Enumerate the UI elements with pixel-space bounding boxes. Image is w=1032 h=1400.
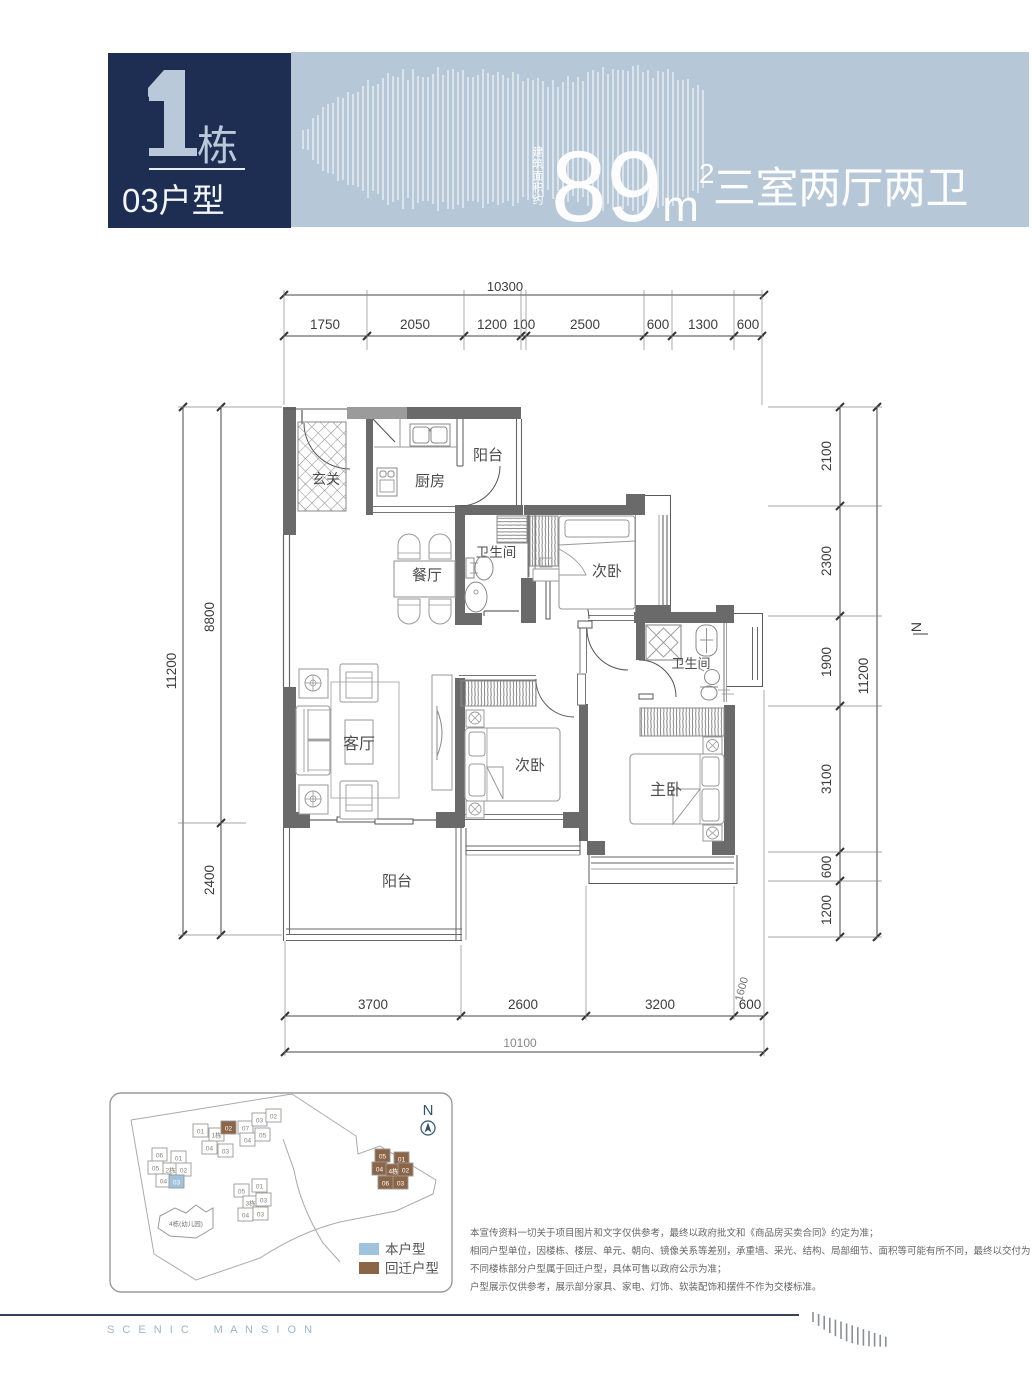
svg-text:11200: 11200 <box>164 653 179 690</box>
svg-text:04: 04 <box>376 1167 384 1174</box>
svg-text:05: 05 <box>238 1189 246 1196</box>
svg-text:04: 04 <box>242 1213 250 1220</box>
svg-text:玄关: 玄关 <box>312 471 340 487</box>
svg-text:10100: 10100 <box>503 1036 537 1050</box>
svg-text:户型展示仅供参考，展示部分家具、家电、灯饰、软装配饰和摆件不: 户型展示仅供参考，展示部分家具、家电、灯饰、软装配饰和摆件不作为交楼标准。 <box>470 1281 822 1293</box>
svg-text:03: 03 <box>397 1181 405 1188</box>
svg-text:相同户型单位，因楼栋、楼层、单元、朝向、镜像关系等差别，承重: 相同户型单位，因楼栋、楼层、单元、朝向、镜像关系等差别，承重墙、采光、结构、局部… <box>470 1245 1031 1257</box>
svg-text:01: 01 <box>175 1156 183 1163</box>
svg-text:1750: 1750 <box>310 317 340 332</box>
svg-text:卫生间: 卫生间 <box>671 656 710 671</box>
svg-text:03: 03 <box>257 1212 265 1219</box>
svg-text:02: 02 <box>180 1168 188 1175</box>
svg-text:4栋(幼儿园): 4栋(幼儿园) <box>169 1219 203 1228</box>
svg-text:客厅: 客厅 <box>343 735 375 753</box>
svg-text:回迁户型: 回迁户型 <box>385 1260 439 1276</box>
svg-text:3700: 3700 <box>358 997 388 1012</box>
svg-text:05: 05 <box>152 1166 160 1173</box>
svg-text:阳台: 阳台 <box>382 873 412 890</box>
svg-text:03: 03 <box>256 1118 264 1125</box>
svg-text:S C E N I C M A N S I O N: S C E N I C M A N S I O N <box>107 1324 315 1336</box>
svg-text:03: 03 <box>222 1149 230 1156</box>
svg-text:阳台: 阳台 <box>473 447 503 464</box>
svg-text:07: 07 <box>242 1126 250 1133</box>
svg-text:2050: 2050 <box>400 317 430 332</box>
svg-text:02: 02 <box>225 1126 233 1133</box>
svg-text:600: 600 <box>819 856 834 879</box>
svg-text:本户型: 本户型 <box>385 1241 426 1257</box>
svg-text:8800: 8800 <box>202 602 217 632</box>
svg-text:2100: 2100 <box>819 441 834 471</box>
svg-text:06: 06 <box>156 1153 164 1160</box>
svg-text:次卧: 次卧 <box>592 563 622 580</box>
svg-text:06: 06 <box>382 1181 390 1188</box>
svg-text:2300: 2300 <box>819 546 834 576</box>
svg-text:03: 03 <box>260 1198 268 1205</box>
svg-text:04: 04 <box>206 1146 214 1153</box>
svg-text:600: 600 <box>737 317 760 332</box>
svg-text:4栋: 4栋 <box>388 1167 399 1176</box>
svg-text:卫生间: 卫生间 <box>476 545 517 560</box>
svg-text:03: 03 <box>173 1180 181 1187</box>
svg-text:厨房: 厨房 <box>415 473 445 490</box>
svg-text:2栋: 2栋 <box>165 1166 176 1175</box>
svg-text:1900: 1900 <box>819 647 834 677</box>
svg-text:主卧: 主卧 <box>650 781 682 799</box>
svg-text:2400: 2400 <box>202 865 217 895</box>
svg-text:100: 100 <box>513 317 536 332</box>
svg-text:10300: 10300 <box>487 279 523 294</box>
svg-text:1300: 1300 <box>688 317 718 332</box>
svg-text:3200: 3200 <box>645 997 675 1012</box>
svg-text:2500: 2500 <box>570 317 600 332</box>
svg-text:05: 05 <box>379 1154 387 1161</box>
svg-text:01: 01 <box>197 1129 205 1136</box>
svg-text:04: 04 <box>160 1179 168 1186</box>
svg-text:11200: 11200 <box>856 658 871 695</box>
svg-text:N: N <box>908 622 924 632</box>
svg-text:3栋: 3栋 <box>245 1199 256 1208</box>
svg-text:600: 600 <box>647 317 670 332</box>
svg-text:餐厅: 餐厅 <box>412 567 442 584</box>
svg-text:04: 04 <box>244 1138 252 1145</box>
svg-text:05: 05 <box>259 1133 267 1140</box>
svg-text:N: N <box>423 1102 434 1119</box>
svg-text:01: 01 <box>398 1157 406 1164</box>
svg-text:不同楼栋部分户型属于回迁户型，具体可售以政府公示为准；: 不同楼栋部分户型属于回迁户型，具体可售以政府公示为准； <box>470 1263 727 1275</box>
svg-text:1200: 1200 <box>477 317 507 332</box>
svg-text:2600: 2600 <box>508 997 538 1012</box>
svg-text:次卧: 次卧 <box>515 757 545 774</box>
svg-text:3100: 3100 <box>819 764 834 794</box>
svg-text:本宣传资料一切关于项目图片和文字仅供参考，最终以政府批文和《: 本宣传资料一切关于项目图片和文字仅供参考，最终以政府批文和《商品房买卖合同》约定… <box>470 1227 879 1239</box>
svg-text:1200: 1200 <box>819 895 834 925</box>
svg-text:1栋: 1栋 <box>211 1131 222 1140</box>
svg-text:02: 02 <box>402 1168 410 1175</box>
svg-text:02: 02 <box>270 1114 278 1121</box>
svg-text:01: 01 <box>256 1184 264 1191</box>
